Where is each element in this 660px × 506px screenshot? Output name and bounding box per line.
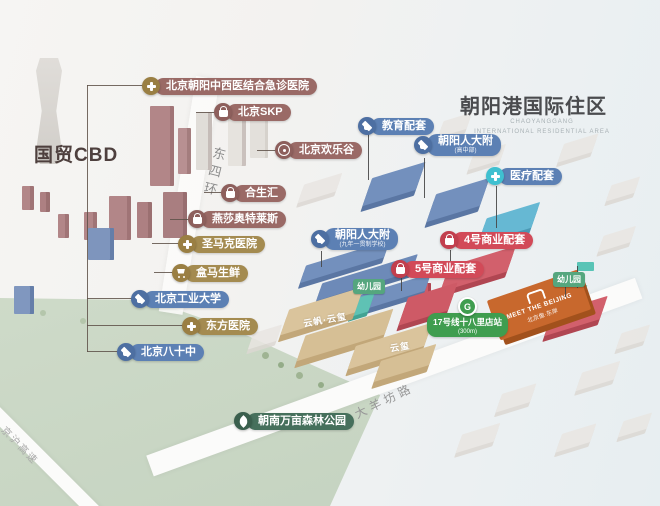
bg-block bbox=[616, 324, 650, 349]
connector-line bbox=[424, 158, 425, 198]
poi-rdf-nine-year-school: 朝阳人大附 (九年一贯制学校) bbox=[311, 228, 398, 250]
connector-line bbox=[368, 134, 369, 180]
poi-label: 朝阳人大附 bbox=[438, 136, 493, 147]
building-maroon bbox=[150, 106, 174, 186]
shopping-bag-icon bbox=[221, 184, 239, 202]
poi-label: 朝南万亩森林公园 bbox=[247, 413, 354, 430]
poi-rdf-high-school: 朝阳人大附 (高中部) bbox=[414, 134, 501, 156]
cbd-title: 国贸CBD bbox=[34, 140, 118, 167]
graduation-cap-icon bbox=[414, 136, 432, 154]
poi-label: 北京朝阳中西医结合急诊医院 bbox=[155, 78, 317, 95]
poi-label: 北京工业大学 bbox=[144, 291, 229, 308]
connector-line bbox=[496, 186, 497, 228]
connector-line bbox=[87, 85, 88, 352]
poi-label: 4号商业配套 bbox=[453, 232, 533, 249]
poi-label: 北京八十中 bbox=[130, 344, 204, 361]
poi-metro-station: G 17号线十八里店站 (300m) bbox=[427, 297, 508, 337]
poi-dongfang-hospital: 东方医院 bbox=[182, 317, 258, 335]
tree bbox=[278, 362, 284, 368]
connector-line bbox=[154, 272, 174, 273]
building-maroon bbox=[22, 186, 34, 210]
connector-line bbox=[87, 85, 143, 86]
poi-sublabel: (高中部) bbox=[455, 148, 477, 154]
poi-bjut: 北京工业大学 bbox=[131, 290, 229, 308]
connector-line bbox=[401, 278, 402, 291]
poi-label: 圣马克医院 bbox=[191, 236, 265, 253]
building-maroon bbox=[58, 214, 69, 238]
tree bbox=[262, 352, 269, 359]
shopping-bag-icon bbox=[391, 260, 409, 278]
poi-label: 17号线十八里店站 bbox=[433, 316, 502, 328]
poi-label: 东方医院 bbox=[195, 318, 258, 335]
area-map: 东四环 大羊坊路 京沪高速 bbox=[0, 0, 660, 506]
bg-block bbox=[598, 226, 636, 252]
building-maroon bbox=[40, 192, 50, 212]
medical-cross-icon bbox=[182, 317, 200, 335]
page-title: 朝阳港国际住区 bbox=[460, 90, 607, 119]
poi-hopson-one: 合生汇 bbox=[221, 184, 286, 202]
connector-line bbox=[196, 112, 216, 113]
connector-line bbox=[87, 325, 184, 326]
poi-medical: 医疗配套 bbox=[486, 167, 562, 185]
poi-label: 5号商业配套 bbox=[404, 261, 484, 278]
building-blue bbox=[14, 286, 34, 314]
tree bbox=[80, 318, 86, 324]
bg-block bbox=[298, 173, 343, 203]
connector-line bbox=[170, 219, 190, 220]
leaf-icon bbox=[234, 412, 252, 430]
shopping-cart-icon bbox=[172, 264, 190, 282]
medical-cross-icon bbox=[142, 77, 160, 95]
bg-block bbox=[618, 412, 652, 437]
poi-label: 医疗配套 bbox=[499, 168, 562, 185]
poi-label: 北京欢乐谷 bbox=[288, 142, 362, 159]
poi-commercial-4: 4号商业配套 bbox=[440, 231, 533, 249]
building-maroon bbox=[178, 128, 191, 174]
connector-line bbox=[152, 243, 180, 244]
poi-sublabel: (300m) bbox=[433, 329, 502, 335]
poi-yansha-outlets: 燕莎奥特莱斯 bbox=[188, 210, 286, 228]
poi-commercial-5: 5号商业配套 bbox=[391, 260, 484, 278]
bg-block bbox=[496, 383, 537, 412]
poi-label: 教育配套 bbox=[371, 118, 434, 135]
poi-skp: 北京SKP bbox=[214, 103, 291, 121]
poi-label: 朝阳人大附 bbox=[335, 230, 390, 241]
shopping-bag-icon bbox=[214, 103, 232, 121]
poi-st-mark-hospital: 圣马克医院 bbox=[178, 235, 265, 253]
building-maroon bbox=[163, 192, 187, 238]
graduation-cap-icon bbox=[311, 230, 329, 248]
page-subtitle-line1: CHAOYANGGANG bbox=[510, 119, 574, 125]
ferris-wheel-icon bbox=[275, 141, 293, 159]
subway-logo-icon: G bbox=[458, 297, 477, 316]
poi-label: 燕莎奥特莱斯 bbox=[201, 211, 286, 228]
poi-bj-80-school: 北京八十中 bbox=[117, 343, 204, 361]
poi-sublabel: (九年一贯制学校) bbox=[340, 242, 386, 248]
poi-education: 教育配套 bbox=[358, 117, 434, 135]
poi-label: 北京SKP bbox=[227, 104, 291, 121]
bg-block bbox=[558, 133, 599, 162]
connector-line bbox=[87, 351, 119, 352]
medical-cross-icon bbox=[486, 167, 504, 185]
medical-cross-icon bbox=[178, 235, 196, 253]
connector-line bbox=[87, 298, 133, 299]
building-gray bbox=[196, 112, 212, 170]
school-building bbox=[362, 162, 425, 206]
kindergarten-tag-right: 幼儿园 bbox=[553, 272, 585, 287]
connector-line bbox=[257, 150, 277, 151]
graduation-cap-icon bbox=[117, 343, 135, 361]
shopping-bag-icon bbox=[440, 231, 458, 249]
school-building bbox=[426, 178, 489, 222]
building-gray bbox=[228, 118, 246, 166]
tree bbox=[318, 382, 324, 388]
kindergarten-tag-left: 幼儿园 bbox=[353, 279, 385, 294]
bg-block bbox=[456, 423, 501, 453]
graduation-cap-icon bbox=[358, 117, 376, 135]
poi-label: 合生汇 bbox=[234, 185, 286, 202]
building-blue bbox=[88, 228, 114, 260]
bg-block bbox=[576, 361, 621, 391]
poi-happy-valley: 北京欢乐谷 bbox=[275, 141, 362, 159]
bg-block bbox=[556, 423, 597, 452]
connector-line bbox=[321, 251, 322, 267]
bg-block bbox=[606, 176, 640, 201]
poi-label: 盒马生鲜 bbox=[185, 265, 248, 282]
shopping-bag-icon bbox=[188, 210, 206, 228]
flag-tag bbox=[577, 262, 594, 271]
graduation-cap-icon bbox=[131, 290, 149, 308]
poi-hema: 盒马生鲜 bbox=[172, 264, 248, 282]
tree bbox=[296, 372, 303, 379]
poi-forest-park: 朝南万亩森林公园 bbox=[234, 412, 354, 430]
poi-er-hospital: 北京朝阳中西医结合急诊医院 bbox=[142, 77, 317, 95]
tree bbox=[40, 310, 46, 316]
building-maroon bbox=[137, 202, 152, 238]
